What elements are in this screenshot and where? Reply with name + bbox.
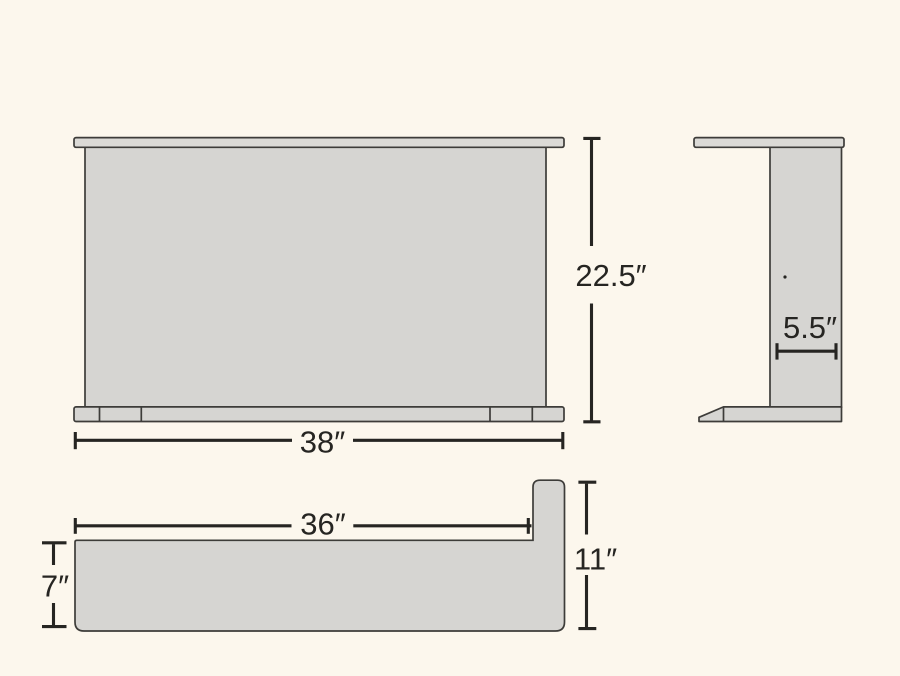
svg-text:7″: 7″ [41, 569, 69, 604]
svg-text:5.5″: 5.5″ [783, 310, 837, 345]
svg-text:22.5″: 22.5″ [575, 258, 646, 293]
svg-text:36″: 36″ [300, 507, 345, 542]
svg-text:38″: 38″ [300, 425, 345, 460]
svg-text:11″: 11″ [574, 542, 617, 577]
